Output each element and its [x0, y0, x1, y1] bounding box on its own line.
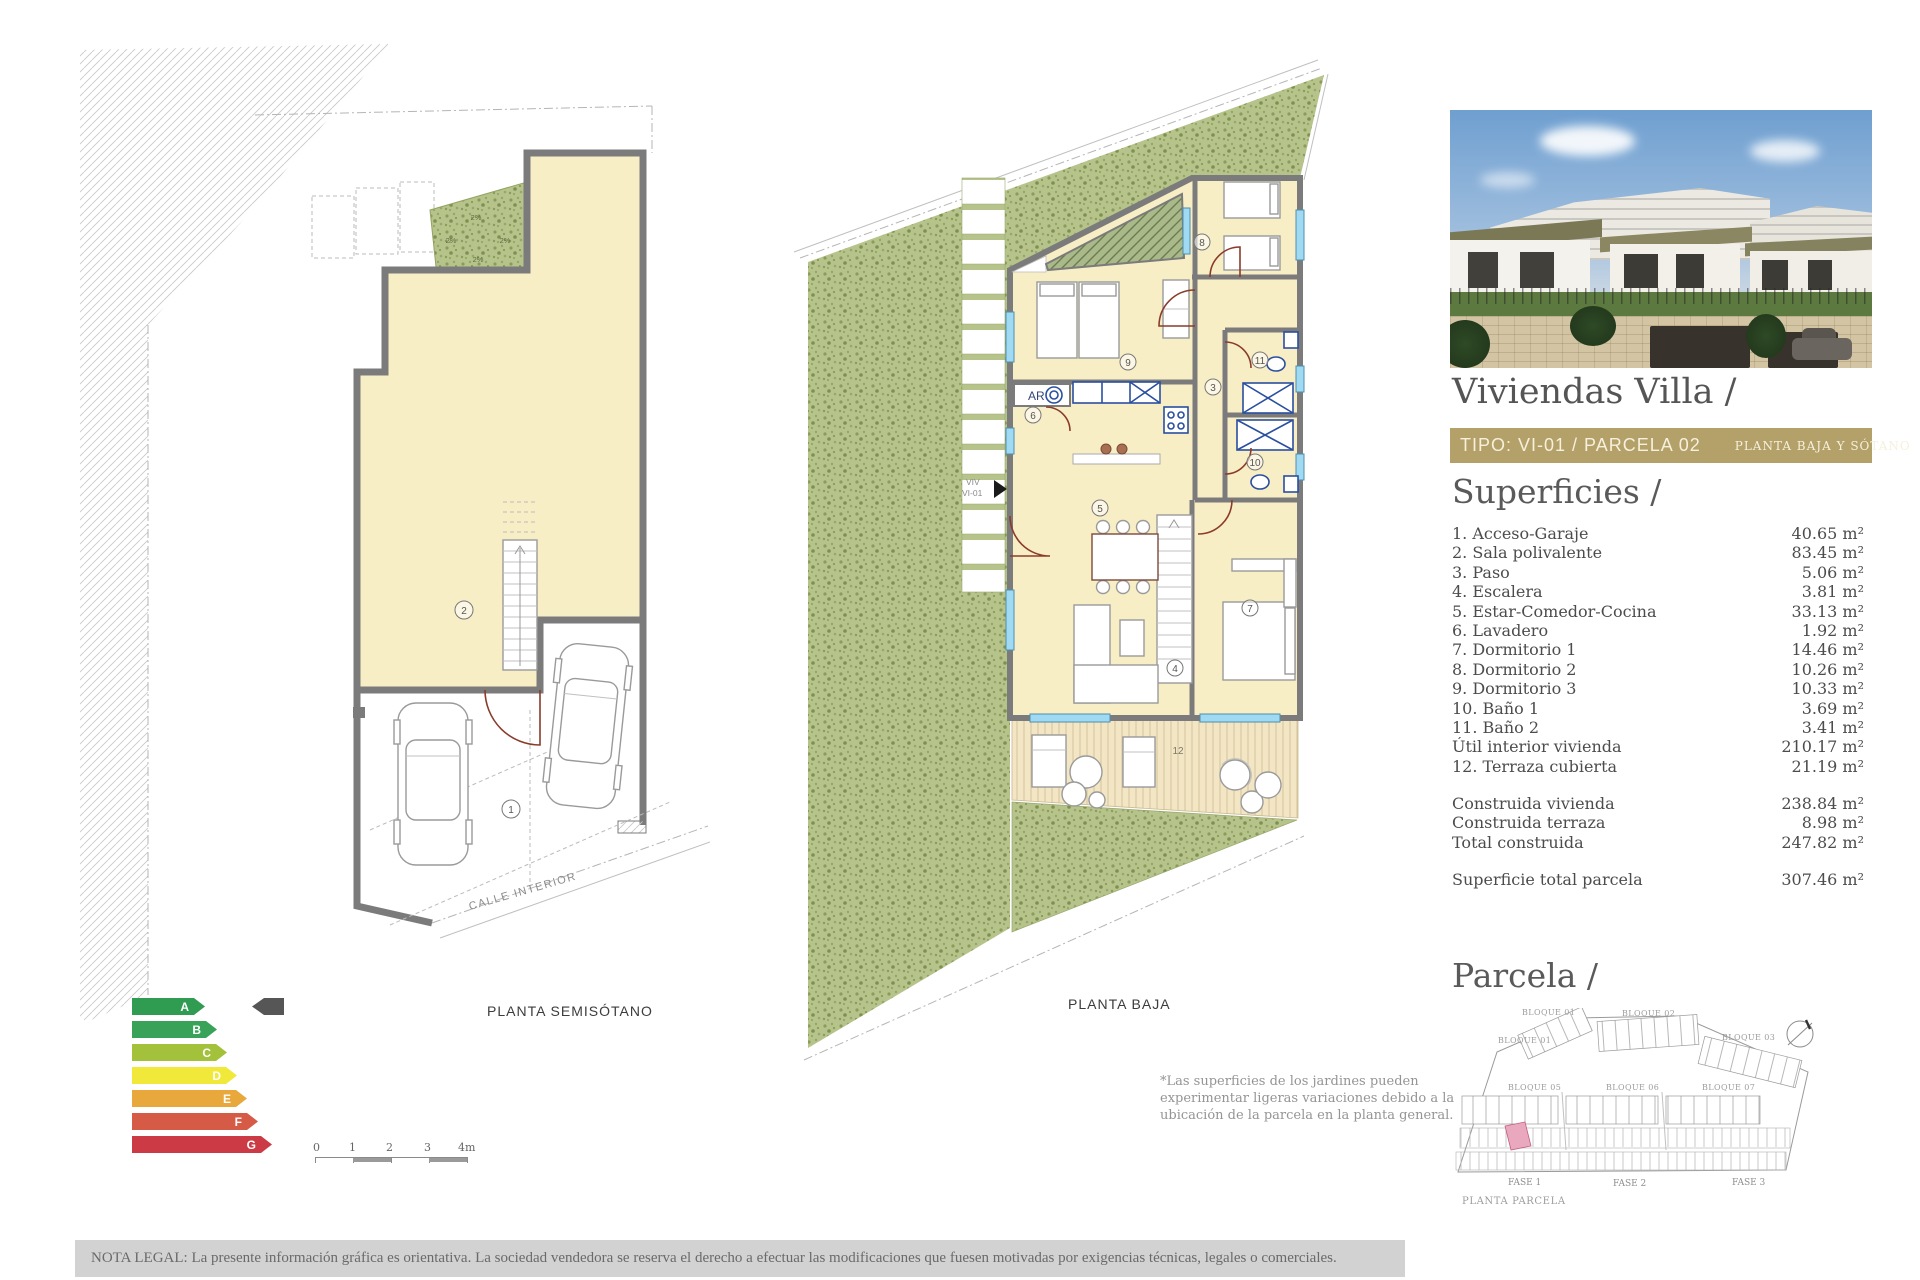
photo-fence	[1450, 288, 1872, 304]
superficies-row: 5. Estar-Comedor-Cocina33.13 m²	[1452, 602, 1864, 621]
superficies-row: Total construida247.82 m²	[1452, 833, 1864, 852]
scale-bar: 0 1 2 3 4m	[313, 1141, 473, 1171]
room-number-sala: 2	[461, 606, 467, 617]
scale-tick: 2	[386, 1141, 393, 1154]
legal-text: NOTA LEGAL: La presente información gráf…	[91, 1250, 1337, 1267]
photo-cloud	[1540, 126, 1635, 156]
room-number: 10	[1249, 458, 1261, 469]
superficies-row: 12. Terraza cubierta21.19 m²	[1452, 757, 1864, 776]
entrance-label: VI-01	[962, 488, 983, 498]
room-number: 7	[1247, 604, 1253, 615]
superficies-totals: Construida vivienda238.84 m²Construida t…	[1452, 794, 1864, 852]
bloque-label: BLOQUE 01	[1522, 1008, 1575, 1017]
photo-bush	[1746, 314, 1786, 358]
photo-cloud	[1480, 172, 1535, 188]
energy-rating-B: B	[132, 1021, 217, 1038]
fase-label: FASE 2	[1613, 1179, 1646, 1189]
room-number: 9	[1125, 358, 1131, 369]
energy-rating-F: F	[132, 1113, 258, 1130]
plan-baja-label: PLANTA BAJA	[1068, 996, 1171, 1012]
superficies-row: 1. Acceso-Garaje40.65 m²	[1452, 524, 1864, 543]
energy-rating-E: E	[132, 1090, 247, 1107]
site-hatch	[80, 44, 390, 1020]
room-number: 4	[1172, 664, 1178, 675]
photo-cloud	[1750, 140, 1820, 162]
superficies-row: 9. Dormitorio 310.33 m²	[1452, 679, 1864, 698]
superficies-row: 7. Dormitorio 114.46 m²	[1452, 640, 1864, 659]
energy-rating-C: C	[132, 1044, 227, 1061]
scale-tick: 3	[424, 1141, 431, 1154]
photo-bush	[1570, 306, 1616, 346]
photo-car	[1792, 338, 1852, 360]
street-label: CALLE INTERIOR	[468, 871, 578, 913]
superficies-heading: Superficies /	[1452, 472, 1661, 511]
superficies-row: Construida terraza8.98 m²	[1452, 813, 1864, 832]
slope-label: 2%	[473, 255, 484, 264]
room-number: 3	[1210, 383, 1216, 394]
planta-parcela-caption: PLANTA PARCELA	[1462, 1196, 1566, 1207]
energy-rating-A: A	[132, 998, 205, 1015]
compass-icon	[1787, 1020, 1813, 1047]
bloque-label: BLOQUE 07	[1702, 1083, 1755, 1092]
bloque-label: BLOQUE 03	[1722, 1033, 1775, 1042]
bloque-label: BLOQUE 02	[1622, 1009, 1675, 1018]
scale-tick: 4m	[458, 1141, 475, 1154]
room-number-terrace: 12	[1172, 746, 1184, 757]
energy-rating-G: G	[132, 1136, 272, 1153]
superficies-row: 10. Baño 13.69 m²	[1452, 699, 1864, 718]
scale-tick: 0	[313, 1141, 320, 1154]
superficies-row: 6. Lavadero1.92 m²	[1452, 621, 1864, 640]
parcel-total-row: Superficie total parcela 307.46 m²	[1452, 870, 1864, 889]
photo-garage-door	[1650, 326, 1750, 368]
superficies-row: 4. Escalera3.81 m²	[1452, 582, 1864, 601]
parcela-site-plan: BLOQUE 01 BLOQUE 02 BLOQUE 01 BLOQUE 03 …	[1448, 1008, 1888, 1208]
superficies-row: 11. Baño 23.41 m²	[1452, 718, 1864, 737]
dining-table	[1092, 521, 1158, 594]
plan-semisotano: 2% 2% 2% 2% 2 1 CALLE INTERIO	[60, 20, 710, 1020]
bloque-label: BLOQUE 01	[1498, 1036, 1551, 1045]
hero-photo	[1450, 110, 1872, 368]
stairs	[1157, 515, 1192, 683]
room-number: 11	[1255, 356, 1266, 367]
room-number-garaje: 1	[508, 805, 514, 816]
bloque-label: BLOQUE 06	[1606, 1083, 1659, 1092]
superficies-row: 2. Sala polivalente83.45 m²	[1452, 543, 1864, 562]
info-panel: Viviendas Villa / TIPO: VI-01 / PARCELA …	[1450, 100, 1872, 1240]
energy-rating-D: D	[132, 1067, 237, 1084]
legal-bar: NOTA LEGAL: La presente información gráf…	[75, 1240, 1405, 1277]
scale-tick: 1	[349, 1141, 356, 1154]
slope-label: 2%	[446, 236, 457, 245]
plan-baja: AR	[790, 30, 1360, 1080]
lawn	[1012, 802, 1297, 932]
parcela-heading: Parcela /	[1452, 956, 1598, 995]
garden-steps	[962, 178, 1005, 592]
plan-semisotano-label: PLANTA SEMISÓTANO	[487, 1003, 653, 1019]
car	[394, 703, 472, 865]
bloque-label: BLOQUE 05	[1508, 1083, 1561, 1092]
superficies-list: 1. Acceso-Garaje40.65 m²2. Sala polivale…	[1452, 524, 1864, 776]
type-bar-main: TIPO: VI-01 / PARCELA 02	[1460, 435, 1701, 456]
superficies-row: 8. Dormitorio 210.26 m²	[1452, 660, 1864, 679]
fase-label: FASE 1	[1508, 1178, 1541, 1188]
room-number: 6	[1030, 411, 1036, 422]
room-number: 8	[1199, 238, 1205, 249]
type-bar-sub: PLANTA BAJA Y SÓTANO	[1735, 439, 1911, 453]
superficies-row: Útil interior vivienda210.17 m²	[1452, 737, 1864, 756]
room-number: 5	[1097, 504, 1103, 515]
garden-footnote: *Las superficies de los jardines pueden …	[1160, 1073, 1460, 1124]
fase-label: FASE 3	[1732, 1178, 1766, 1188]
slope-label: 2%	[471, 213, 482, 222]
energy-pointer-icon	[252, 998, 284, 1015]
superficies-row: Construida vivienda238.84 m²	[1452, 794, 1864, 813]
superficies-row: 3. Paso5.06 m²	[1452, 563, 1864, 582]
closet-ar-label: AR	[1028, 389, 1045, 403]
page-title: Viviendas Villa /	[1452, 372, 1736, 412]
type-bar: TIPO: VI-01 / PARCELA 02 PLANTA BAJA Y S…	[1450, 428, 1872, 463]
car	[541, 641, 635, 810]
slope-label: 2%	[500, 236, 511, 245]
garage-door-arc	[485, 690, 540, 745]
entrance-label: VIV	[966, 477, 980, 487]
